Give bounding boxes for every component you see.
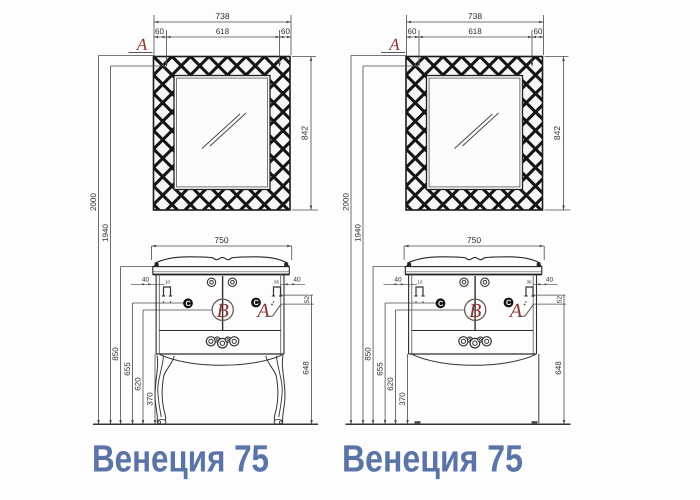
svg-text:620: 620 <box>386 377 395 391</box>
svg-text:655: 655 <box>123 362 132 376</box>
svg-text:850: 850 <box>364 347 373 361</box>
svg-text:B: B <box>469 300 481 322</box>
svg-text:60: 60 <box>281 27 290 36</box>
svg-text:60: 60 <box>408 27 417 36</box>
svg-text:648: 648 <box>302 361 311 375</box>
svg-text:40: 40 <box>394 277 402 284</box>
svg-text:648: 648 <box>554 361 563 375</box>
svg-text:655: 655 <box>376 362 385 376</box>
svg-text:738: 738 <box>215 11 229 21</box>
svg-text:750: 750 <box>467 235 481 245</box>
svg-text:750: 750 <box>214 235 228 245</box>
svg-text:A: A <box>255 300 270 322</box>
svg-text:850: 850 <box>111 347 120 361</box>
svg-text:36: 36 <box>526 280 532 285</box>
svg-text:C: C <box>438 299 444 308</box>
svg-text:2000: 2000 <box>89 193 98 211</box>
svg-text:36: 36 <box>274 280 280 285</box>
svg-text:40: 40 <box>293 277 301 284</box>
svg-text:620: 620 <box>134 377 143 391</box>
svg-text:52: 52 <box>557 296 564 304</box>
svg-text:Венеция 75: Венеция 75 <box>342 439 523 481</box>
svg-text:A: A <box>508 300 523 322</box>
svg-text:40: 40 <box>142 277 150 284</box>
svg-text:60: 60 <box>155 27 164 36</box>
svg-text:1940: 1940 <box>101 224 110 242</box>
svg-text:738: 738 <box>468 11 482 21</box>
svg-text:52: 52 <box>304 296 311 304</box>
svg-text:Венеция 75: Венеция 75 <box>92 439 269 481</box>
svg-text:10: 10 <box>165 280 171 285</box>
svg-text:2000: 2000 <box>342 193 351 211</box>
svg-text:A: A <box>136 35 148 54</box>
svg-text:C: C <box>185 299 191 308</box>
svg-text:A: A <box>388 35 400 54</box>
svg-text:842: 842 <box>300 126 310 140</box>
svg-text:370: 370 <box>146 392 155 406</box>
svg-text:40: 40 <box>546 277 554 284</box>
svg-text:618: 618 <box>216 27 230 36</box>
svg-text:1940: 1940 <box>354 224 363 242</box>
svg-text:842: 842 <box>552 126 562 140</box>
svg-text:618: 618 <box>468 27 482 36</box>
svg-text:60: 60 <box>534 27 543 36</box>
svg-text:370: 370 <box>398 392 407 406</box>
svg-text:B: B <box>217 300 229 322</box>
svg-text:10: 10 <box>417 280 423 285</box>
